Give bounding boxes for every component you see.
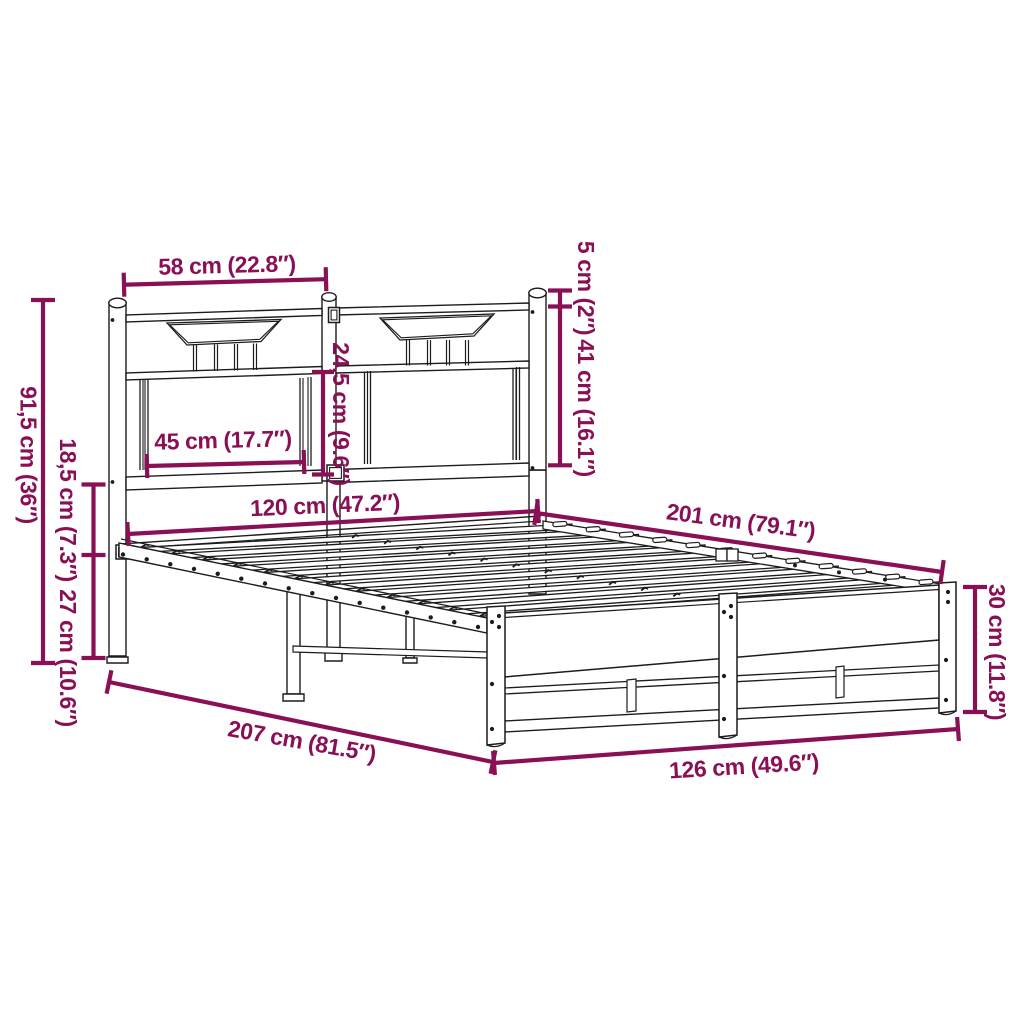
svg-text:41 cm (16.1″): 41 cm (16.1″): [573, 339, 599, 477]
svg-text:45 cm (17.7″): 45 cm (17.7″): [154, 425, 292, 455]
svg-text:27 cm (10.6″): 27 cm (10.6″): [55, 589, 81, 727]
svg-text:30 cm (11.8″): 30 cm (11.8″): [984, 584, 1010, 720]
svg-text:18,5 cm (7.3″): 18,5 cm (7.3″): [55, 438, 81, 582]
svg-text:58 cm (22.8″): 58 cm (22.8″): [158, 250, 296, 280]
svg-text:24,5 cm (9.6″): 24,5 cm (9.6″): [328, 342, 354, 486]
svg-text:5 cm (2″): 5 cm (2″): [573, 241, 599, 335]
svg-text:91,5 cm (36″): 91,5 cm (36″): [16, 386, 42, 524]
